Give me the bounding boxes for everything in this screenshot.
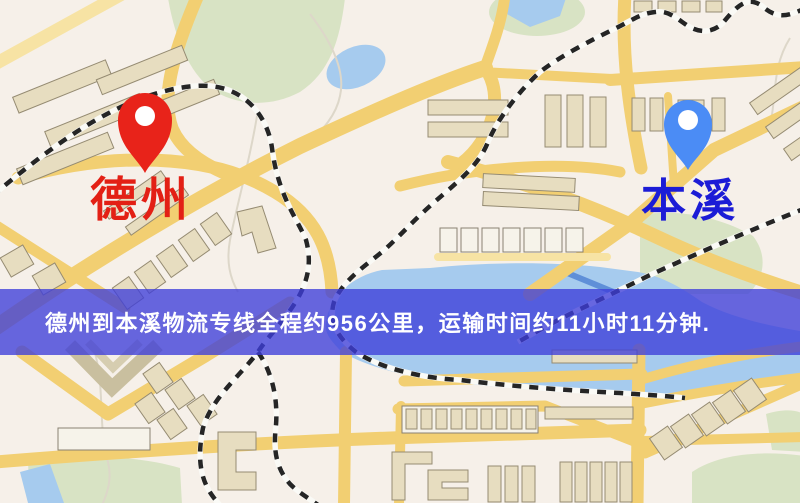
- map-image: [0, 0, 800, 503]
- map-canvas: 德州 本溪 德州到本溪物流专线全程约956公里，运输时间约11小时11分钟.: [0, 0, 800, 503]
- route-info-text: 德州到本溪物流专线全程约956公里，运输时间约11小时11分钟.: [0, 306, 710, 338]
- origin-city-label: 德州: [90, 178, 192, 225]
- route-info-banner: 德州到本溪物流专线全程约956公里，运输时间约11小时11分钟.: [0, 289, 800, 355]
- destination-city-label: 本溪: [641, 179, 739, 224]
